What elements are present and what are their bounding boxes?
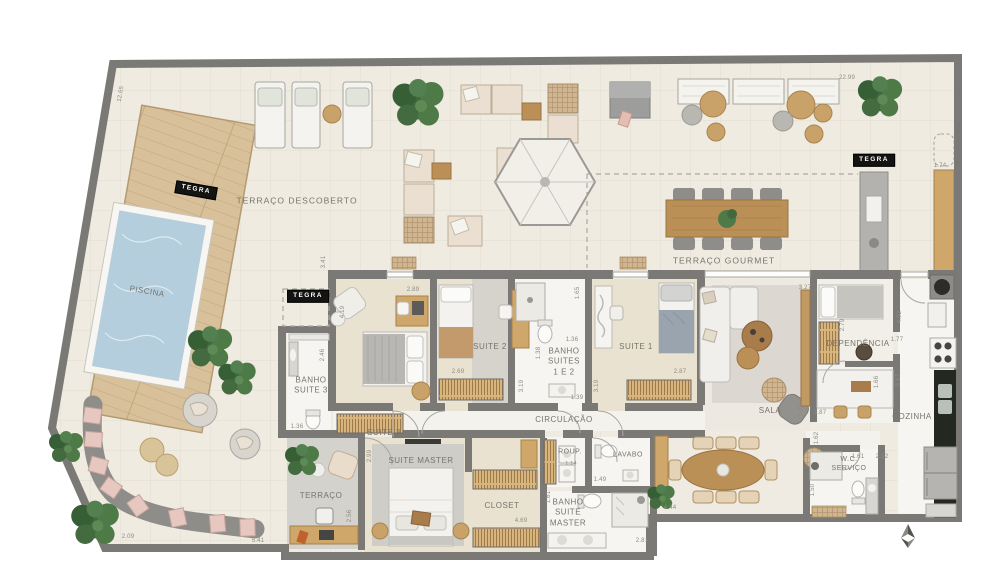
dim-dep-wardrobe: 2.79 <box>840 319 846 331</box>
room-label-terraco: TERRAÇO <box>300 491 343 501</box>
dim-banho12-door: 1.39 <box>571 395 583 401</box>
room-label-lavabo: LAVABO <box>613 450 643 459</box>
room-label-terraco-gourmet: TERRAÇO GOURMET <box>673 255 775 266</box>
dim-sala-right: 6.25 <box>798 404 804 416</box>
north-arrow-icon <box>901 524 915 548</box>
room-label-dependencia: DEPENDÊNCIA <box>826 339 889 349</box>
dim-dep-bottom: 1.66 <box>874 376 880 388</box>
dim-gourmet-top: 22.99 <box>839 75 855 81</box>
dim-kitchen-table: 3.87 <box>814 410 826 416</box>
dim-suite3-left: 4.19 <box>340 306 346 318</box>
dim-roup-width: 1.14 <box>565 461 577 467</box>
dim-hall-right: 1.62 <box>814 432 820 444</box>
dim-banho3-height: 2.46 <box>320 349 326 361</box>
room-label-sala: SALA <box>759 406 781 416</box>
brand-logo-gourmet: TEGRA <box>853 154 895 167</box>
room-label-suite-master: SUITE MASTER <box>388 456 453 466</box>
room-label-cozinha: COZINHA <box>892 412 932 422</box>
room-label-closet: CLOSET <box>484 501 519 511</box>
dim-banho12-left: 1.38 <box>536 347 542 359</box>
room-label-suite2: SUITE 2 <box>473 342 507 352</box>
dim-suite3-top: 3.41 <box>321 256 327 268</box>
dim-kitchen-side: 5.17 <box>896 374 902 386</box>
dim-wc-left: 1.50 <box>810 484 816 496</box>
room-label-suite1: SUITE 1 <box>619 342 653 352</box>
floorplan: TERRAÇO DESCOBERTO PISCINA TERRAÇO GOURM… <box>0 0 1000 576</box>
dim-sala-top: 3.27 <box>799 285 811 291</box>
dim-sofa-width: 2.09 <box>122 534 134 540</box>
dim-wc-width-a: 1.61 <box>852 454 864 460</box>
room-label-roup: ROUP. <box>558 447 582 456</box>
dim-suite2-wardrobe: 2.69 <box>452 369 464 375</box>
room-label-banho-suite3: BANHO SUITE 3 <box>294 376 328 397</box>
dim-kitchen-pass: 1.77 <box>891 337 903 343</box>
dim-terraco-right: 2.56 <box>347 510 353 522</box>
brand-logo-shaft: TEGRA <box>287 290 329 303</box>
dim-gourmet-counter: 1.74 <box>934 163 946 169</box>
dim-banho12-top: 1.65 <box>575 287 581 299</box>
dim-roup-door: 1.49 <box>594 477 606 483</box>
dim-dining-bottom: 4.44 <box>664 505 676 511</box>
room-label-circulacao: CIRCULAÇÃO <box>535 415 592 425</box>
dim-bottom-left: 5.41 <box>252 538 264 544</box>
dim-wc-width-b: 2.12 <box>876 454 888 460</box>
dim-kitchen-top: 4.92 <box>897 311 903 323</box>
sun-loungers <box>255 82 372 148</box>
dim-circ-left: 3.19 <box>519 380 525 392</box>
dim-suite-master-left: 2.99 <box>367 450 373 462</box>
room-label-banho-suites12: BANHO SUITES 1 E 2 <box>548 346 580 377</box>
dim-circ-right: 3.19 <box>594 380 600 392</box>
dim-suite1-wardrobe: 2.87 <box>674 369 686 375</box>
dim-suite3-desk: 2.89 <box>407 287 419 293</box>
dim-banho-master-left: 1.61 <box>546 491 552 503</box>
room-label-suite3: SUITE 3 <box>367 428 401 438</box>
dim-banho12-width: 1.36 <box>566 337 578 343</box>
dim-banho3-width: 1.36 <box>291 424 303 430</box>
dim-banho-master-bottom: 2.81 <box>636 538 648 544</box>
room-label-banho-suite-master: BANHO SUITE MASTER <box>550 497 586 528</box>
room-label-terraco-descoberto: TERRAÇO DESCOBERTO <box>236 195 357 206</box>
dim-closet-width: 4.69 <box>515 518 527 524</box>
